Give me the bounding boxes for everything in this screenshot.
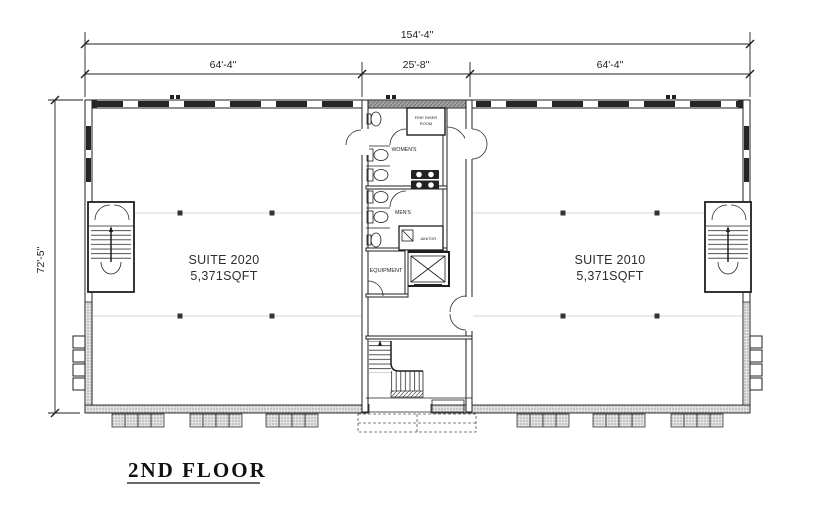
suite-2010-door-upper [472,129,487,144]
dimension-right-bay-label: 64'-4" [597,59,624,71]
fire-riser-label-2: ROOM [420,121,432,126]
suite-2010-door-lower [450,296,466,312]
dimension-height-label: 72'-5" [35,246,47,273]
equipment-label: EQUIPMENT [370,268,403,274]
dimension-center-bay-label: 25'-8" [403,59,430,71]
mens-door [390,191,406,207]
central-core: FIRE RISER ROOM WOMEN'S [346,100,487,432]
sheet-title: 2ND FLOOR [128,458,267,482]
sheet-title-group: 2ND FLOOR [127,458,267,483]
top-windows-right [476,101,738,107]
left-pilasters [73,336,85,390]
awning-groups [112,414,723,427]
suite-2010-label-group: SUITE 2010 5,371SQFT [574,253,645,283]
left-stairwell [88,202,134,292]
womens-door [390,129,406,145]
janitor-label: JANITOR [420,237,436,241]
dimension-overall-label: 154'-4" [401,29,434,41]
right-pilasters [750,336,762,390]
womens-label: WOMEN'S [392,147,417,153]
equipment-room: EQUIPMENT [366,250,408,297]
suite-2020-door [346,130,361,145]
janitor-closet: JANITOR [399,226,443,250]
core-stair [366,336,472,397]
toilet-fixture [367,211,388,223]
floor-plan-drawing: 154'-4" 64'-4" 25'-8" 64'-4" 72'-5" [0,0,819,526]
stair-treads [391,371,423,391]
fire-riser-room: FIRE RISER ROOM [407,108,445,135]
top-windows-left [97,101,358,107]
suite-2020-label-group: SUITE 2020 5,371SQFT [188,253,259,283]
toilet-fixture [367,191,388,203]
dimension-annotations: 154'-4" 64'-4" 25'-8" 64'-4" 72'-5" [35,29,754,417]
floor-plan-sheet: 154'-4" 64'-4" 25'-8" 64'-4" 72'-5" [0,0,819,526]
right-stairwell [705,202,751,292]
elevator-door [414,284,442,287]
sink-fixture [367,112,381,126]
toilet-fixture [367,169,388,181]
suite-2010-name: SUITE 2010 [574,253,645,267]
elevator-shaft [407,252,449,287]
suite-2010-area: 5,371SQFT [576,269,643,283]
toilet-fixture [367,149,388,161]
mens-label: MEN'S [395,210,412,216]
roof-drain-marks [170,95,676,99]
dimension-left-bay-label: 64'-4" [210,59,237,71]
suite-2020-name: SUITE 2020 [188,253,259,267]
fire-riser-label-1: FIRE RISER [415,115,438,120]
sink-fixture [367,233,381,247]
drinking-fountains [411,170,439,190]
entry-canopy [358,414,476,432]
suite-2020-area: 5,371SQFT [190,269,257,283]
